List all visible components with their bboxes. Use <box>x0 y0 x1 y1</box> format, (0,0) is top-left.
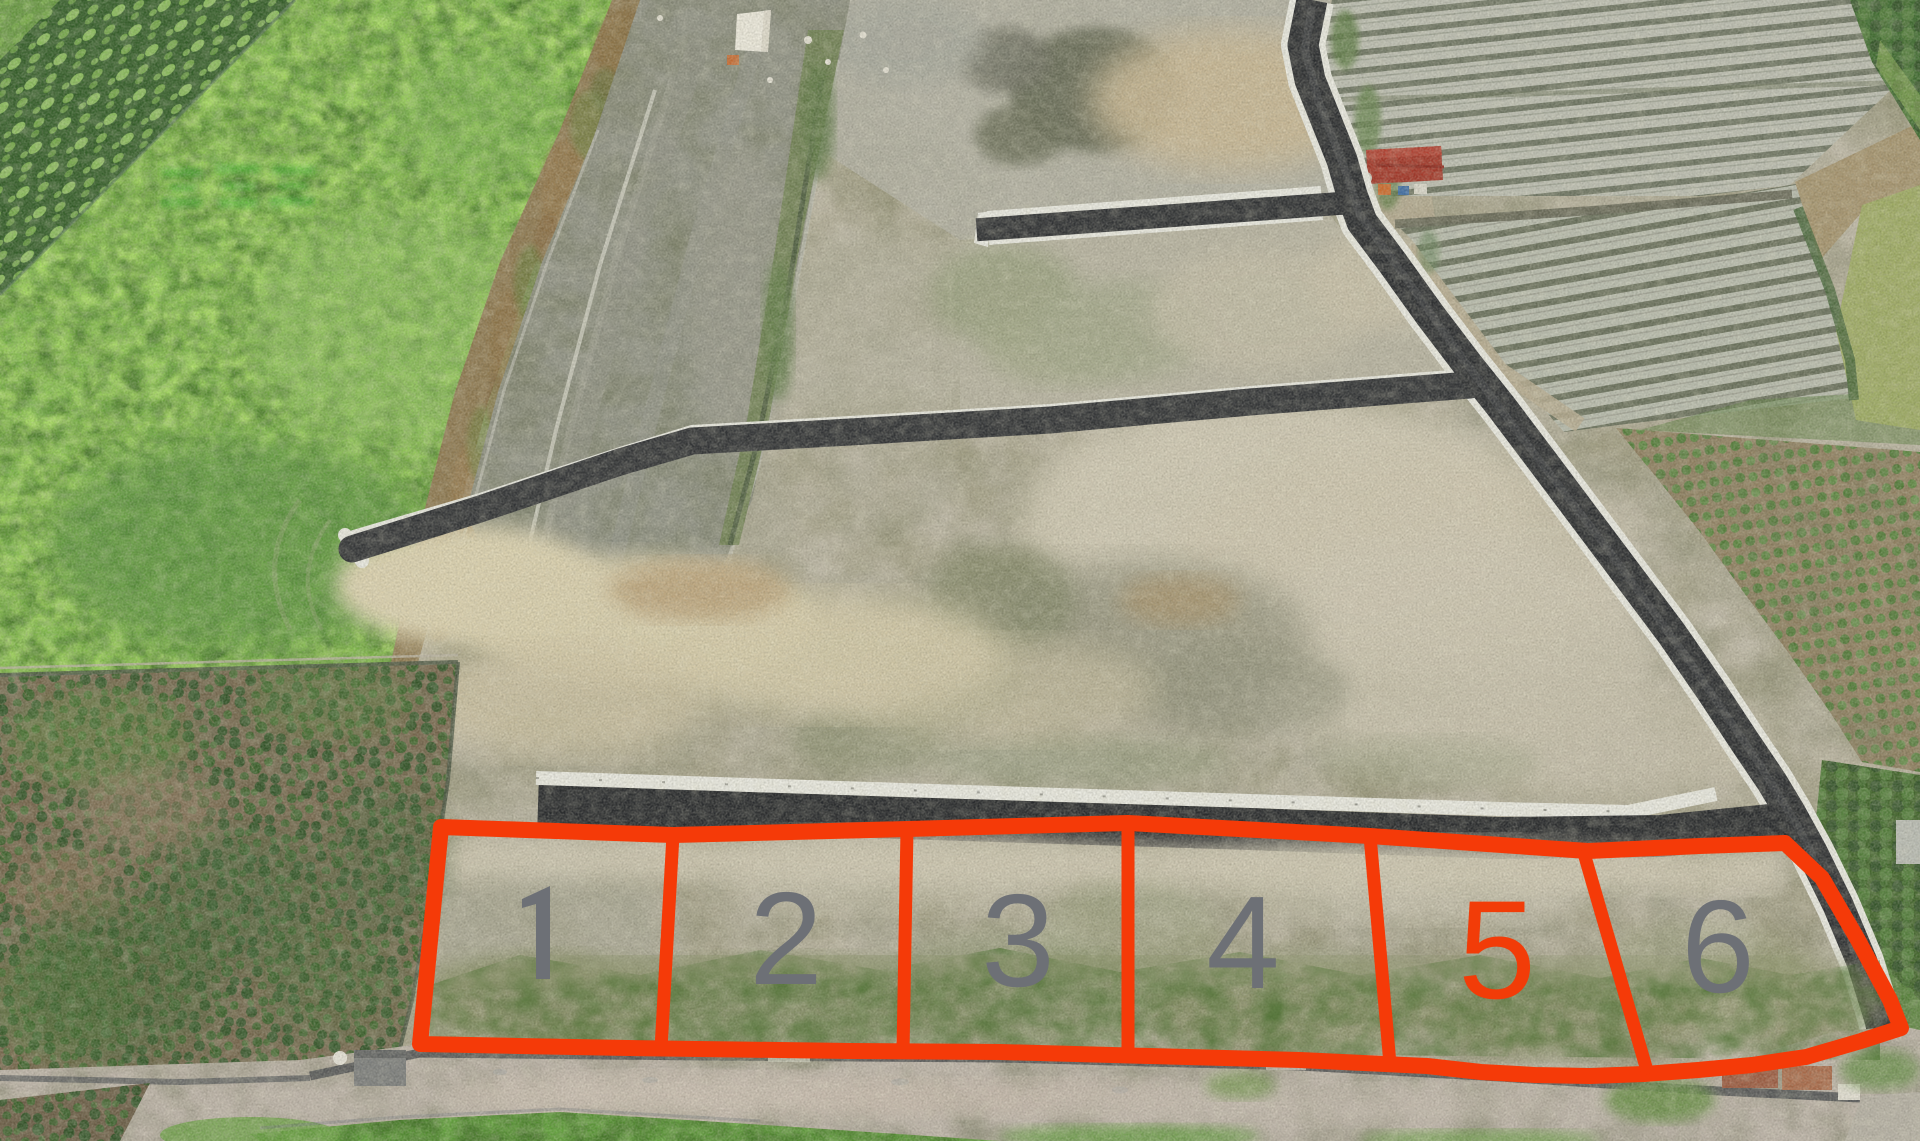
svg-text:3: 3 <box>981 867 1054 1014</box>
svg-text:6: 6 <box>1681 873 1754 1020</box>
svg-text:4: 4 <box>1206 869 1279 1016</box>
svg-text:5: 5 <box>1458 871 1536 1028</box>
svg-text:2: 2 <box>749 865 822 1012</box>
